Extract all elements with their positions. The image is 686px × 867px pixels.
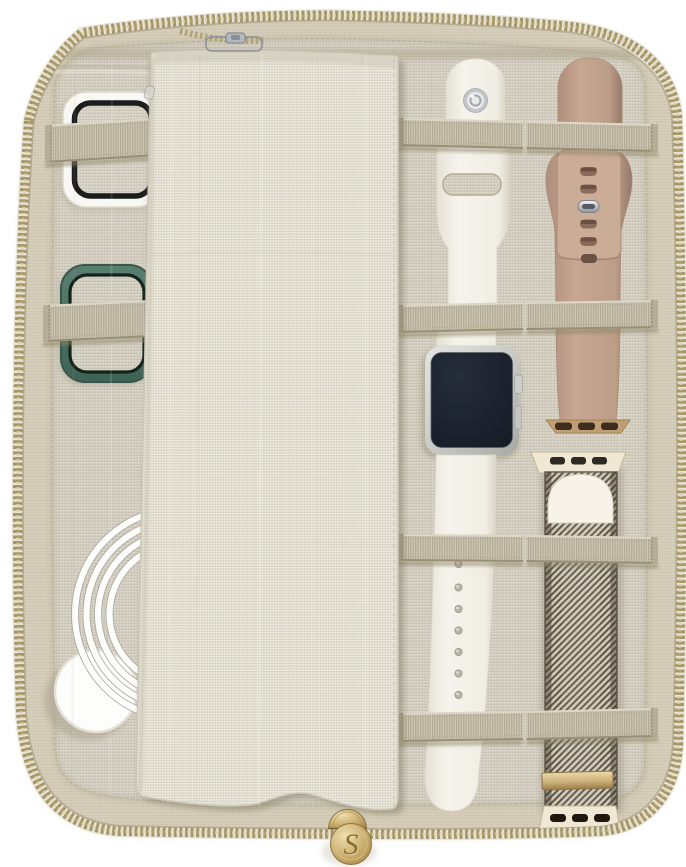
svg-text:S: S <box>344 828 359 861</box>
